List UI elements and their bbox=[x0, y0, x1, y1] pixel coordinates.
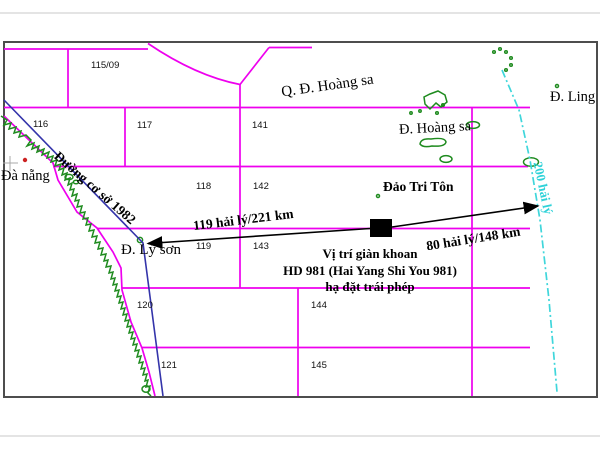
rig-marker bbox=[370, 219, 392, 237]
block-label: 117 bbox=[137, 120, 152, 131]
block-label: 121 bbox=[161, 360, 177, 371]
rig-annotation-line1: Vị trí giàn khoan bbox=[264, 246, 476, 263]
ly-son-label: Đ. Lý sơn bbox=[121, 242, 181, 259]
block-label: 115/09 bbox=[91, 60, 119, 71]
triton-island-label: Đảo Tri Tôn bbox=[383, 180, 454, 195]
block-label: 144 bbox=[311, 300, 327, 311]
rig-annotation-line3: hạ đặt trái phép bbox=[264, 279, 476, 296]
rig-annotation: Vị trí giàn khoan HD 981 (Hai Yang Shi Y… bbox=[264, 246, 476, 296]
rig-annotation-line2: HD 981 (Hai Yang Shi You 981) bbox=[264, 263, 476, 280]
block-label: 119 bbox=[196, 241, 211, 252]
da-nang-label: Đà nẵng bbox=[1, 169, 50, 185]
block-label: 120 bbox=[137, 300, 153, 311]
block-label: 116 bbox=[33, 119, 48, 130]
block-label: 142 bbox=[253, 181, 269, 192]
block-label: 145 bbox=[311, 360, 327, 371]
block-label: 141 bbox=[252, 120, 268, 131]
map-area: 115/09 116 117 141 118 142 119 143 120 1… bbox=[0, 0, 600, 450]
block-label: 118 bbox=[196, 181, 211, 192]
da-nang-city-marker bbox=[23, 158, 27, 162]
ling-island-label: Đ. Ling bbox=[550, 90, 595, 106]
